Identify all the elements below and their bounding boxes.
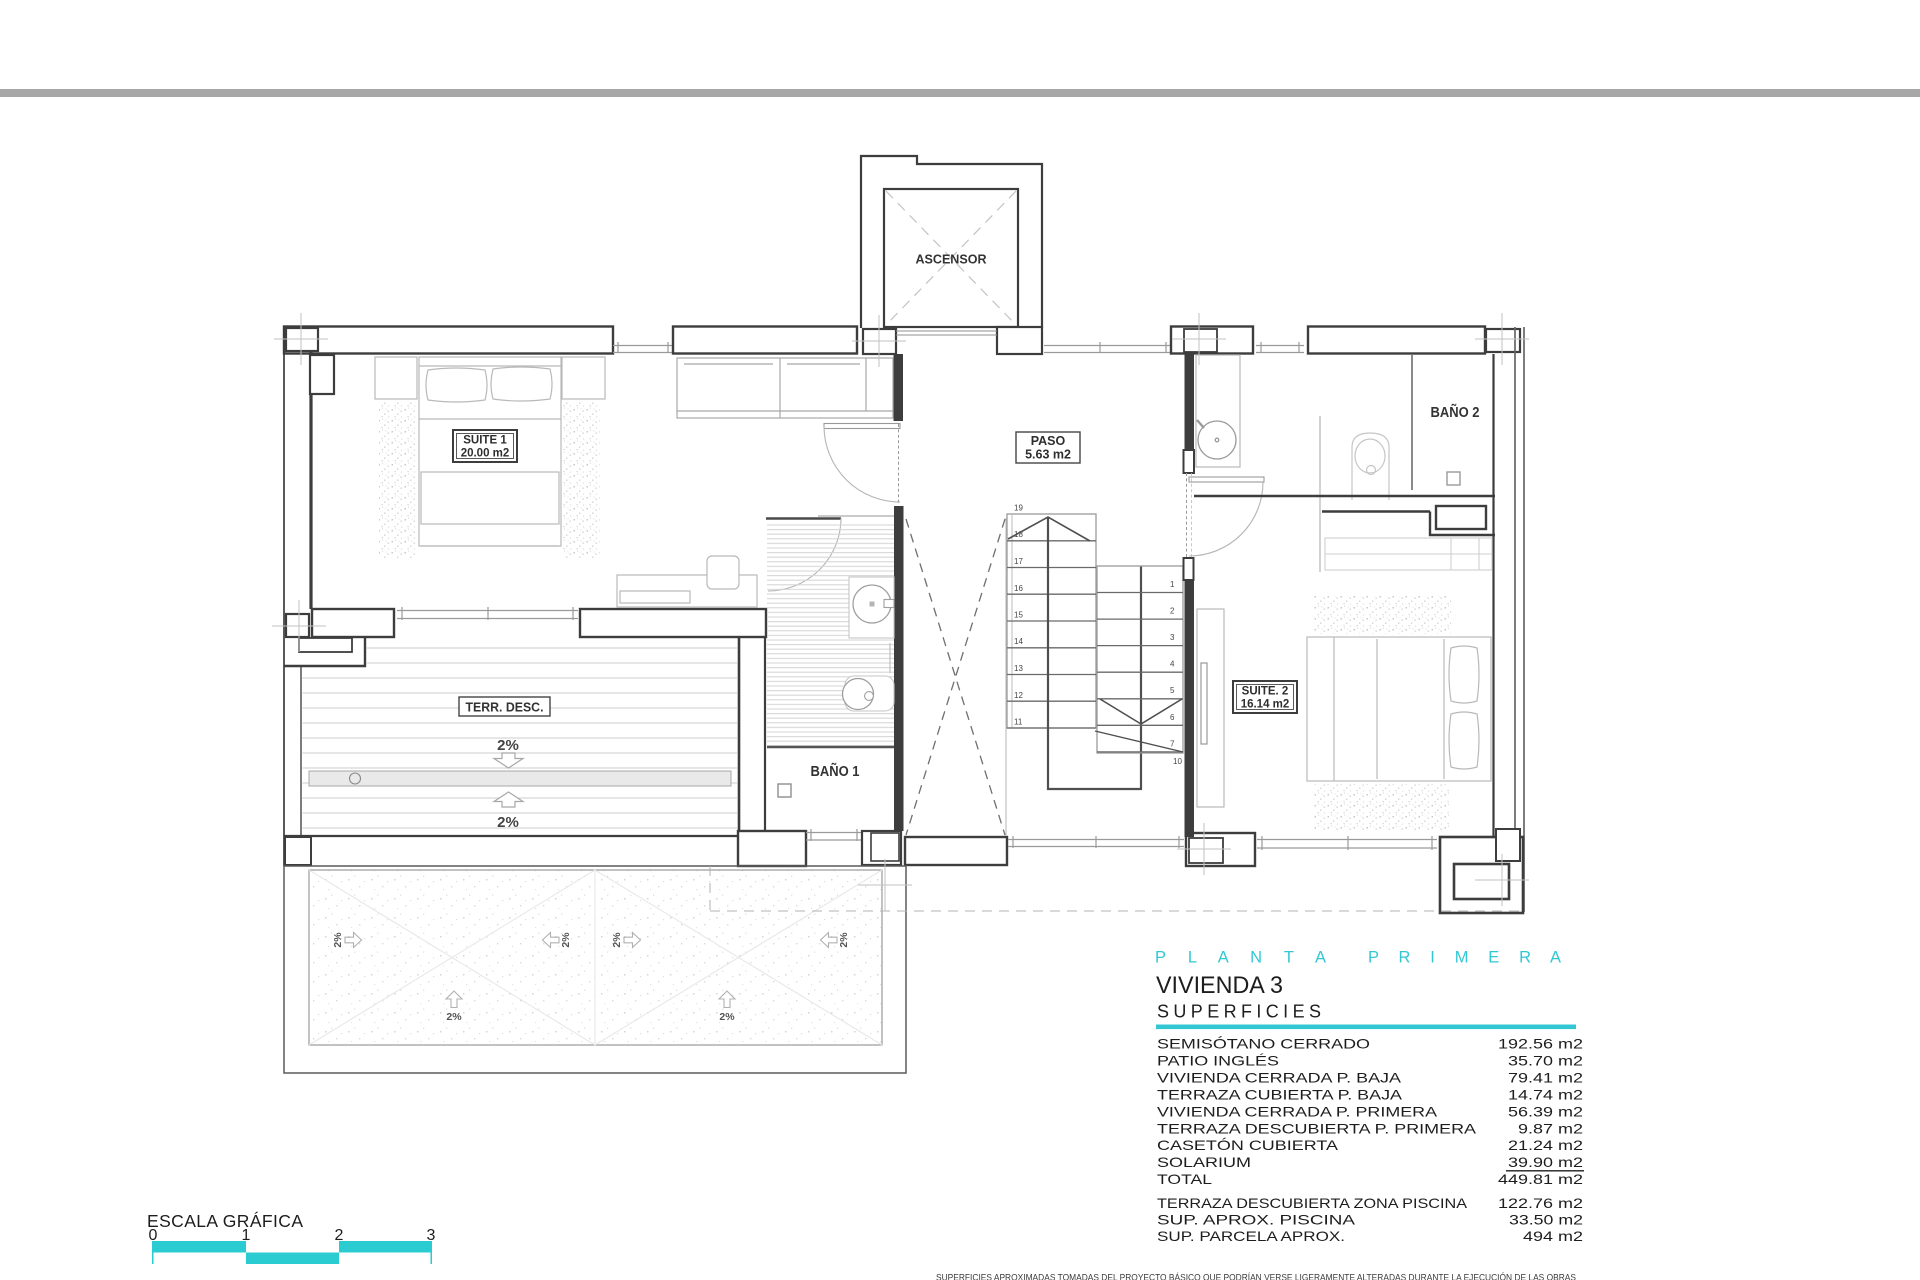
svg-text:TERRAZA DESCUBIERTA ZONA PISC: TERRAZA DESCUBIERTA ZONA PISCINA [1157, 1195, 1468, 1211]
svg-text:PASO: PASO [1031, 434, 1066, 448]
svg-text:2: 2 [1170, 607, 1175, 616]
svg-text:2%: 2% [497, 814, 519, 831]
svg-text:TERRAZA CUBIERTA P. BAJA: TERRAZA CUBIERTA P. BAJA [1157, 1087, 1403, 1103]
svg-text:SUP. APROX. PISCINA: SUP. APROX. PISCINA [1157, 1211, 1356, 1227]
svg-text:2%: 2% [838, 932, 850, 948]
svg-text:BAÑO 1: BAÑO 1 [811, 762, 860, 780]
svg-text:494 m2: 494 m2 [1523, 1228, 1583, 1244]
svg-text:14: 14 [1014, 637, 1023, 646]
svg-text:79.41 m2: 79.41 m2 [1508, 1070, 1583, 1086]
svg-text:2%: 2% [332, 932, 344, 948]
svg-text:VIVIENDA CERRADA P. BAJA: VIVIENDA CERRADA P. BAJA [1157, 1070, 1402, 1086]
svg-text:39.90 m2: 39.90 m2 [1508, 1154, 1583, 1170]
svg-text:6: 6 [1170, 713, 1175, 722]
svg-text:ASCENSOR: ASCENSOR [916, 253, 987, 267]
svg-text:13: 13 [1014, 664, 1023, 673]
svg-text:9.87 m2: 9.87 m2 [1518, 1120, 1583, 1136]
svg-text:11: 11 [1014, 718, 1023, 727]
svg-text:BAÑO 2: BAÑO 2 [1431, 403, 1480, 421]
svg-text:21.24 m2: 21.24 m2 [1508, 1137, 1583, 1153]
svg-text:TERR. DESC.: TERR. DESC. [466, 701, 544, 715]
svg-text:20.00 m2: 20.00 m2 [461, 448, 510, 460]
svg-text:2%: 2% [497, 737, 519, 754]
svg-text:5.63 m2: 5.63 m2 [1025, 448, 1071, 462]
svg-text:TOTAL: TOTAL [1157, 1171, 1212, 1187]
svg-text:17: 17 [1014, 557, 1023, 566]
svg-text:2%: 2% [611, 932, 623, 948]
svg-text:VIVIENDA 3: VIVIENDA 3 [1156, 972, 1283, 999]
svg-text:4: 4 [1170, 660, 1175, 669]
svg-text:449.81 m2: 449.81 m2 [1498, 1171, 1583, 1187]
svg-text:SOLARIUM: SOLARIUM [1157, 1154, 1251, 1170]
svg-text:TERRAZA DESCUBIERTA P. PRIMERA: TERRAZA DESCUBIERTA P. PRIMERA [1157, 1120, 1477, 1136]
svg-text:SUP. PARCELA APROX.: SUP. PARCELA APROX. [1157, 1228, 1345, 1244]
svg-text:12: 12 [1014, 691, 1023, 700]
svg-text:56.39 m2: 56.39 m2 [1508, 1103, 1583, 1119]
svg-text:2%: 2% [446, 1011, 462, 1023]
svg-text:SUITE. 2: SUITE. 2 [1242, 686, 1289, 698]
svg-text:CASETÓN CUBIERTA: CASETÓN CUBIERTA [1157, 1137, 1339, 1153]
svg-text:VIVIENDA CERRADA P. PRIMERA: VIVIENDA CERRADA P. PRIMERA [1157, 1103, 1438, 1119]
svg-text:PATIO INGLÉS: PATIO INGLÉS [1157, 1053, 1279, 1069]
svg-text:19: 19 [1014, 504, 1023, 513]
svg-text:SUITE 1: SUITE 1 [463, 435, 507, 447]
svg-text:SEMISÓTANO CERRADO: SEMISÓTANO CERRADO [1157, 1036, 1370, 1052]
svg-text:2%: 2% [719, 1011, 735, 1023]
svg-text:16: 16 [1014, 584, 1023, 593]
svg-text:1: 1 [1170, 580, 1175, 589]
svg-text:15: 15 [1014, 611, 1023, 620]
svg-text:33.50 m2: 33.50 m2 [1509, 1211, 1583, 1227]
svg-text:122.76 m2: 122.76 m2 [1498, 1195, 1583, 1211]
svg-text:2%: 2% [560, 932, 572, 948]
svg-text:3: 3 [1170, 633, 1175, 642]
svg-text:5: 5 [1170, 686, 1175, 695]
svg-text:SUPERFICIES APROXIMADAS TOMADA: SUPERFICIES APROXIMADAS TOMADAS DEL PROY… [936, 1273, 1576, 1280]
svg-text:7: 7 [1170, 739, 1175, 748]
svg-text:192.56 m2: 192.56 m2 [1498, 1036, 1583, 1052]
svg-text:16.14 m2: 16.14 m2 [1241, 699, 1290, 711]
svg-text:14.74 m2: 14.74 m2 [1508, 1087, 1583, 1103]
svg-text:ESCALA GRÁFICA: ESCALA GRÁFICA [147, 1211, 303, 1231]
svg-text:10: 10 [1173, 757, 1182, 766]
svg-text:35.70 m2: 35.70 m2 [1508, 1053, 1583, 1069]
